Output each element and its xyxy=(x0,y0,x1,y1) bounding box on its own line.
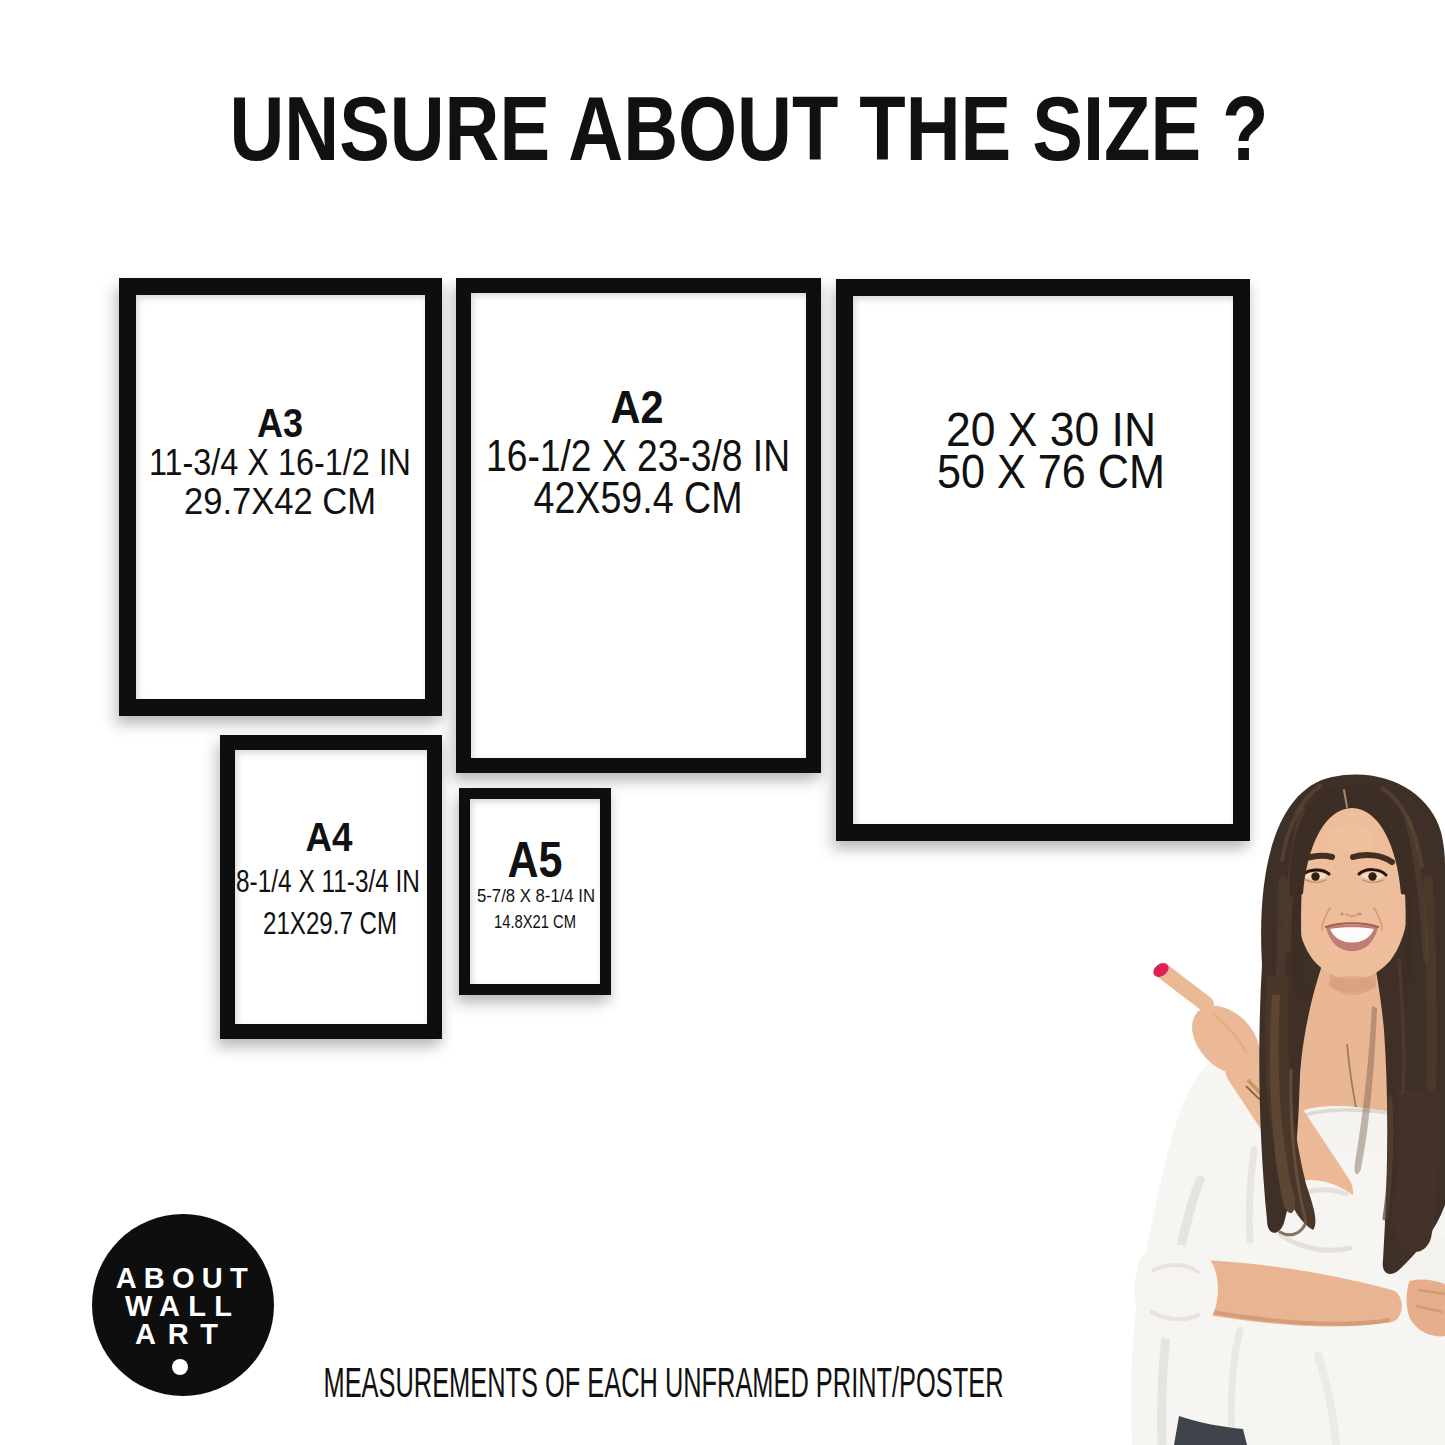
svg-text:A3: A3 xyxy=(257,401,303,445)
svg-text:50 X 76 CM: 50 X 76 CM xyxy=(937,445,1165,498)
svg-text:ART: ART xyxy=(135,1318,218,1350)
svg-text:42X59.4 CM: 42X59.4 CM xyxy=(534,473,743,522)
svg-text:MEASUREMENTS OF EACH UNFRAMED: MEASUREMENTS OF EACH UNFRAMED PRINT/POST… xyxy=(324,1359,1004,1406)
svg-text:11-3/4 X 16-1/2 IN: 11-3/4 X 16-1/2 IN xyxy=(149,442,411,483)
svg-text:5-7/8 X 8-1/4 IN: 5-7/8 X 8-1/4 IN xyxy=(477,885,595,906)
svg-text:21X29.7 CM: 21X29.7 CM xyxy=(263,906,397,941)
svg-text:8-1/4 X 11-3/4 IN: 8-1/4 X 11-3/4 IN xyxy=(236,864,420,899)
svg-text:A4: A4 xyxy=(306,815,354,859)
svg-text:A2: A2 xyxy=(611,380,664,433)
svg-text:14.8X21 CM: 14.8X21 CM xyxy=(494,911,576,932)
svg-text:A5: A5 xyxy=(508,832,563,888)
svg-text:UNSURE ABOUT THE SIZE ?: UNSURE ABOUT THE SIZE ? xyxy=(230,79,1269,179)
svg-text:29.7X42 CM: 29.7X42 CM xyxy=(184,481,376,522)
